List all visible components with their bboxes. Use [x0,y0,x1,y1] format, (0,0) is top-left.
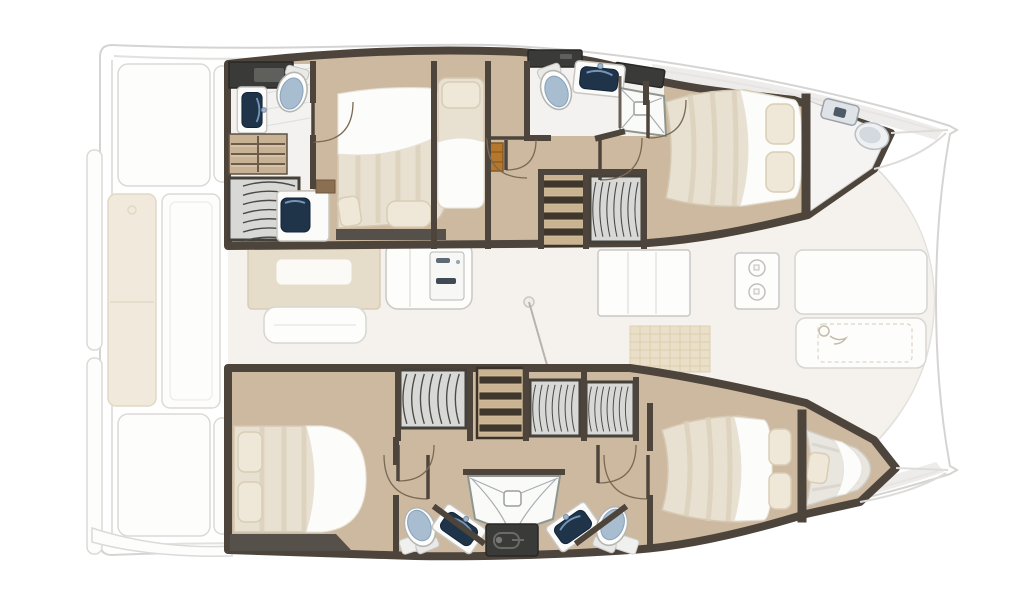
bed-platform [230,534,352,551]
head-cabinet [486,524,538,556]
saloon-table [248,243,380,309]
aft-double-berth [234,426,366,532]
appliance-handle-icon [436,258,450,263]
pillow-icon [766,104,794,144]
hanging-wardrobe [400,370,466,428]
nightstand [316,180,335,193]
pillow-icon [766,152,794,192]
bed-headboard [336,229,446,240]
pillow-icon [238,482,262,522]
pillow-icon [769,429,791,465]
galley-counter [598,250,690,316]
hanging-wardrobe [590,176,642,242]
hanging-wardrobe [530,380,580,436]
forward-double-cabin-bottom [662,416,791,522]
pillow-icon [806,452,830,484]
hanging-wardrobe [586,382,634,436]
yacht-floor-plan [0,0,1009,600]
foredeck [795,250,927,368]
shower-drain [504,491,521,506]
swim-platform-top [87,150,102,350]
head-washbasin [237,87,266,133]
pillow-icon [442,82,480,108]
cockpit-deck-panel-1 [118,64,210,186]
forward-double-berth [662,416,791,522]
galley-floor-mat [630,326,710,372]
saloon-table-top [276,259,352,285]
floor-plan-svg [0,0,1009,600]
galley-unit [386,241,472,309]
cockpit-table [162,194,220,408]
shelf-locker [229,134,287,174]
cockpit-bench-cushion [108,194,156,406]
pillow-icon [387,201,431,227]
vanity-desk [277,191,329,241]
swim-platform-bottom [87,358,102,554]
foredeck-panel [795,250,927,314]
foredeck-sunpad [796,318,926,368]
cockpit-deck-panel-3 [118,414,210,536]
pillow-icon [238,432,262,472]
forward-double-berth [666,90,802,206]
saloon-sofa [264,307,366,343]
companionway-steps [477,368,524,438]
pillow-icon [769,473,791,509]
top-companionway [541,172,642,246]
appliance-door-handle-icon [436,278,456,284]
mid-washbasin [572,60,625,97]
companionway-steps [541,172,586,246]
galley-stove [735,253,779,309]
pillow-icon [337,195,362,227]
forward-double-cabin-top [666,90,802,206]
